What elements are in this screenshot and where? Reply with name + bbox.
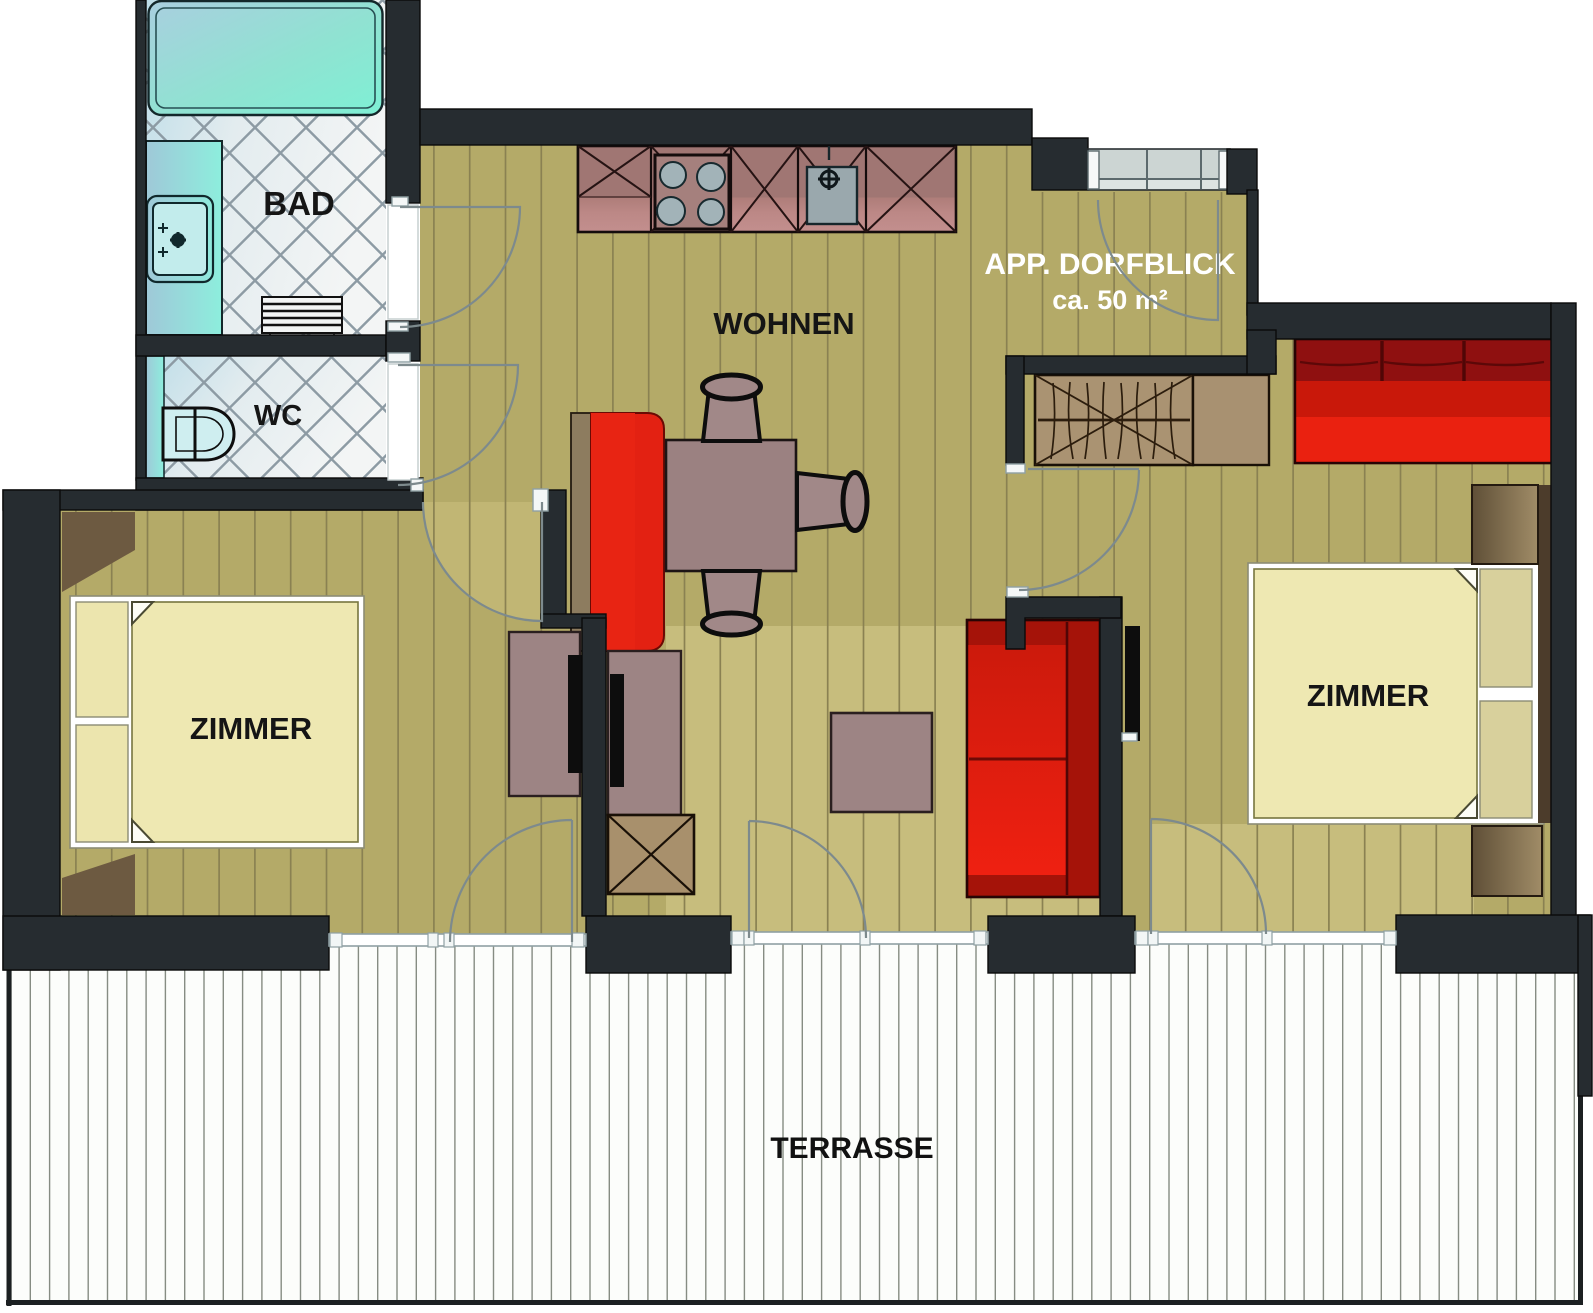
svg-text:ZIMMER: ZIMMER xyxy=(1307,678,1429,713)
svg-text:BAD: BAD xyxy=(263,185,335,222)
svg-text:WC: WC xyxy=(254,400,302,432)
svg-text:ZIMMER: ZIMMER xyxy=(190,711,312,746)
svg-text:WOHNEN: WOHNEN xyxy=(713,306,854,341)
svg-text:TERRASSE: TERRASSE xyxy=(770,1132,933,1165)
